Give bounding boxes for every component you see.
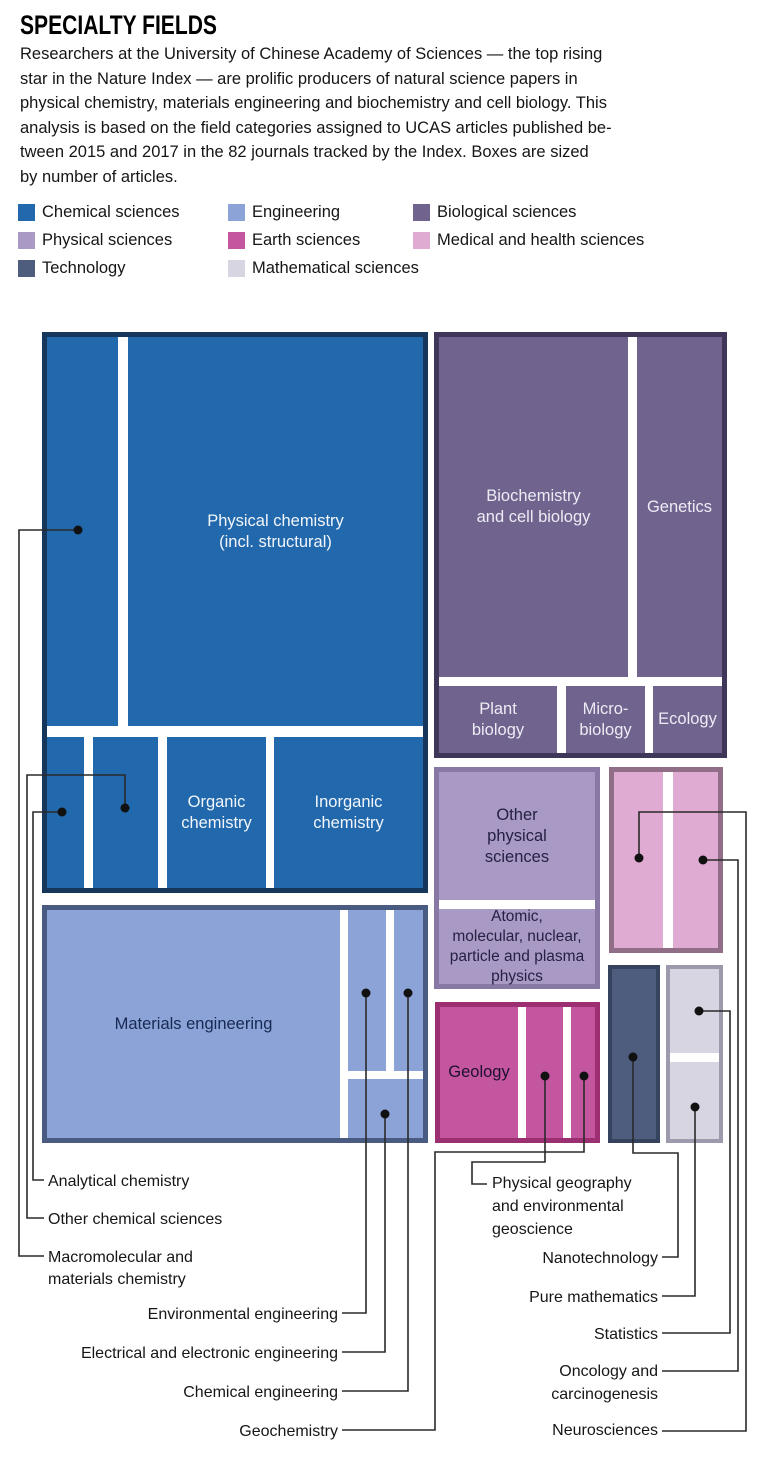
callout-neurosciences: Neurosciences [0,1420,658,1442]
treemap-group-technology box-nanotechnology [608,965,660,1143]
legend-label: Technology [42,259,125,278]
page-title: SPECIALTY FIELDS [20,10,217,41]
box-chemical-engineering [394,910,423,1071]
legend-item-biological: Biological sciences [413,203,576,221]
legend-label: Mathematical sciences [252,259,419,278]
box-geochemistry [571,1007,595,1138]
callout-statistics: Statistics [0,1324,658,1346]
legend-item-chemical: Chemical sciences [18,203,180,221]
box-oncology-carcinogenesis [673,772,718,948]
legend-label: Earth sciences [252,231,360,250]
treemap-group-physical-sciences: Other physical sciences Atomic, molecula… [434,767,600,989]
box-microbiology: Micro- biology [566,686,645,753]
treemap-group-earth-sciences: Geology [435,1002,600,1143]
box-organic-chemistry: Organic chemistry [167,737,266,888]
box-materials-engineering: Materials engineering [47,910,340,1138]
callout-oncology-carcinogenesis: Oncology and carcinogenesis [0,1360,658,1406]
legend-item-earth: Earth sciences [228,231,360,249]
box-genetics: Genetics [637,337,722,677]
box-pure-mathematics [670,1062,719,1139]
box-environmental-engineering [348,910,386,1071]
legend-label: Biological sciences [437,203,576,222]
box-inorganic-chemistry: Inorganic chemistry [274,737,423,888]
treemap-group-biological-sciences: Biochemistry and cell biology Genetics P… [434,332,727,758]
legend-swatch-biological [413,204,430,221]
callout-other-chemical-sciences: Other chemical sciences [48,1209,222,1231]
box-neurosciences [614,772,663,948]
box-geology: Geology [440,1007,518,1138]
legend-swatch-engineering [228,204,245,221]
legend-swatch-earth [228,232,245,249]
legend-swatch-technology [18,260,35,277]
box-physical-chemistry: Physical chemistry (incl. structural) [128,337,423,726]
legend-swatch-physical [18,232,35,249]
legend-label: Medical and health sciences [437,231,644,250]
legend-swatch-mathematical [228,260,245,277]
box-other-chemical-sciences [93,737,158,888]
box-analytical-chemistry [47,737,84,888]
box-physical-geography [526,1007,563,1138]
legend-label: Chemical sciences [42,203,180,222]
legend-item-engineering: Engineering [228,203,340,221]
callout-nanotechnology: Nanotechnology [0,1248,658,1270]
intro-paragraph: Researchers at the University of Chinese… [20,42,760,190]
box-other-physical-sciences: Other physical sciences [439,772,595,900]
legend-label: Physical sciences [42,231,172,250]
box-biochemistry-cell-biology: Biochemistry and cell biology [439,337,628,677]
box-statistics [670,969,719,1053]
treemap-group-mathematical-sciences [666,965,723,1143]
box-macromolecular-materials-chemistry [47,337,118,726]
legend-label: Engineering [252,203,340,222]
callout-analytical-chemistry: Analytical chemistry [48,1171,189,1193]
treemap-group-chemical-sciences: Physical chemistry (incl. structural) Or… [42,332,428,893]
callout-pure-mathematics: Pure mathematics [0,1287,658,1309]
treemap-group-medical-health-sciences [609,767,723,953]
specialty-fields-infographic: SPECIALTY FIELDS Researchers at the Univ… [0,0,767,1462]
box-plant-biology: Plant biology [439,686,557,753]
legend-item-technology: Technology [18,259,125,277]
callout-physical-geography: Physical geography and environmental geo… [492,1172,632,1241]
legend-item-medical: Medical and health sciences [413,231,644,249]
legend-swatch-chemical [18,204,35,221]
box-atomic-molecular-nuclear-physics: Atomic, molecular, nuclear, particle and… [439,909,595,984]
treemap-group-engineering: Materials engineering [42,905,428,1143]
legend-item-physical: Physical sciences [18,231,172,249]
legend-item-mathematical: Mathematical sciences [228,259,419,277]
box-ecology: Ecology [653,686,722,753]
legend-swatch-medical [413,232,430,249]
box-electrical-electronic-engineering [348,1079,423,1138]
